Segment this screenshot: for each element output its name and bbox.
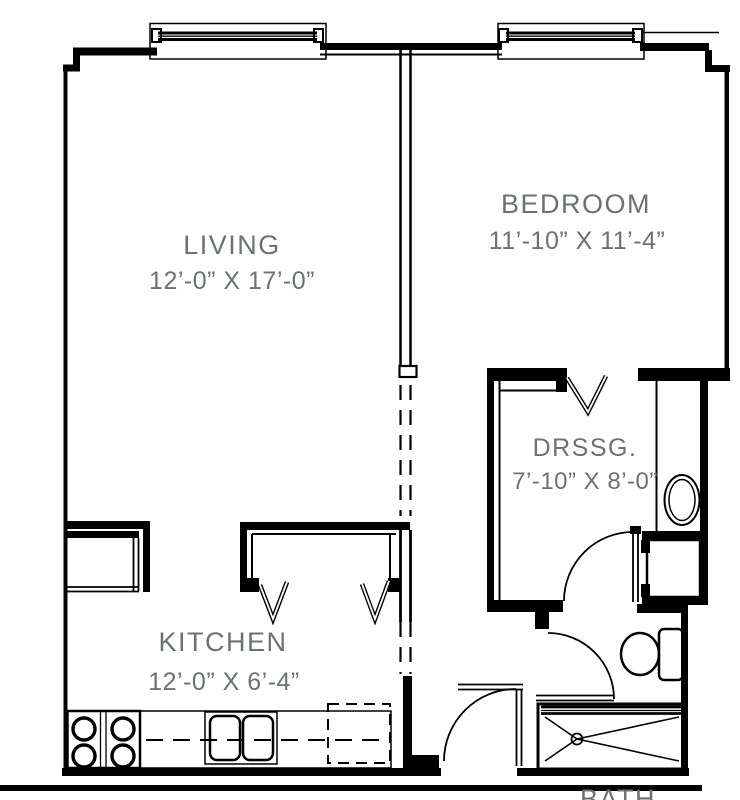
- bedroom-window: [498, 24, 644, 60]
- dishwasher: [328, 704, 390, 763]
- burner: [112, 718, 134, 740]
- burner: [112, 745, 134, 767]
- double-sink: [205, 712, 277, 764]
- entry-door: [403, 676, 523, 768]
- bath-door: [536, 633, 614, 701]
- bifold-door-mark: [260, 582, 287, 619]
- burner: [73, 718, 95, 740]
- bedroom-label: BEDROOM: [501, 189, 651, 219]
- exterior-walls: [0, 33, 730, 792]
- refrigerator-closet: [64, 521, 150, 592]
- bath-label: BATH: [580, 784, 656, 800]
- dressing-label: DRSSG.: [533, 434, 638, 462]
- shower: [538, 704, 686, 769]
- left-wall: [64, 70, 68, 772]
- bifold-door-mark: [567, 376, 606, 412]
- linen-closet: [637, 540, 708, 613]
- kitchen-dims: 12’-0” X 6’-4”: [148, 668, 300, 696]
- bifold-door-mark: [362, 581, 389, 619]
- right-wall: [725, 71, 730, 368]
- door-swing-arc: [564, 532, 633, 601]
- door-swing-arc: [444, 689, 516, 761]
- living-label: LIVING: [183, 230, 281, 260]
- burner: [73, 745, 95, 767]
- kitchen-closet: [240, 522, 411, 622]
- range: [67, 711, 140, 768]
- living-window: [150, 24, 326, 60]
- toilet: [621, 629, 683, 680]
- dressing-dims: 7’-10” X 8’-0”: [512, 468, 658, 495]
- floor-plan-drawing: LIVING 12’-0” X 17’-0” BEDROOM 11’-10” X…: [0, 0, 740, 800]
- bedroom-dims: 11’-10” X 11’-4”: [489, 227, 666, 255]
- floor-plan: LIVING 12’-0” X 17’-0” BEDROOM 11’-10” X…: [0, 0, 740, 800]
- dressing-room-walls: [487, 368, 606, 629]
- door-swing-arc: [548, 633, 614, 699]
- living-bedroom-wall: [400, 50, 417, 377]
- dressing-door: [564, 526, 641, 602]
- kitchen-label: KITCHEN: [158, 627, 287, 657]
- living-dims: 12’-0” X 17’-0”: [149, 267, 315, 295]
- bottom-wall: [62, 768, 441, 776]
